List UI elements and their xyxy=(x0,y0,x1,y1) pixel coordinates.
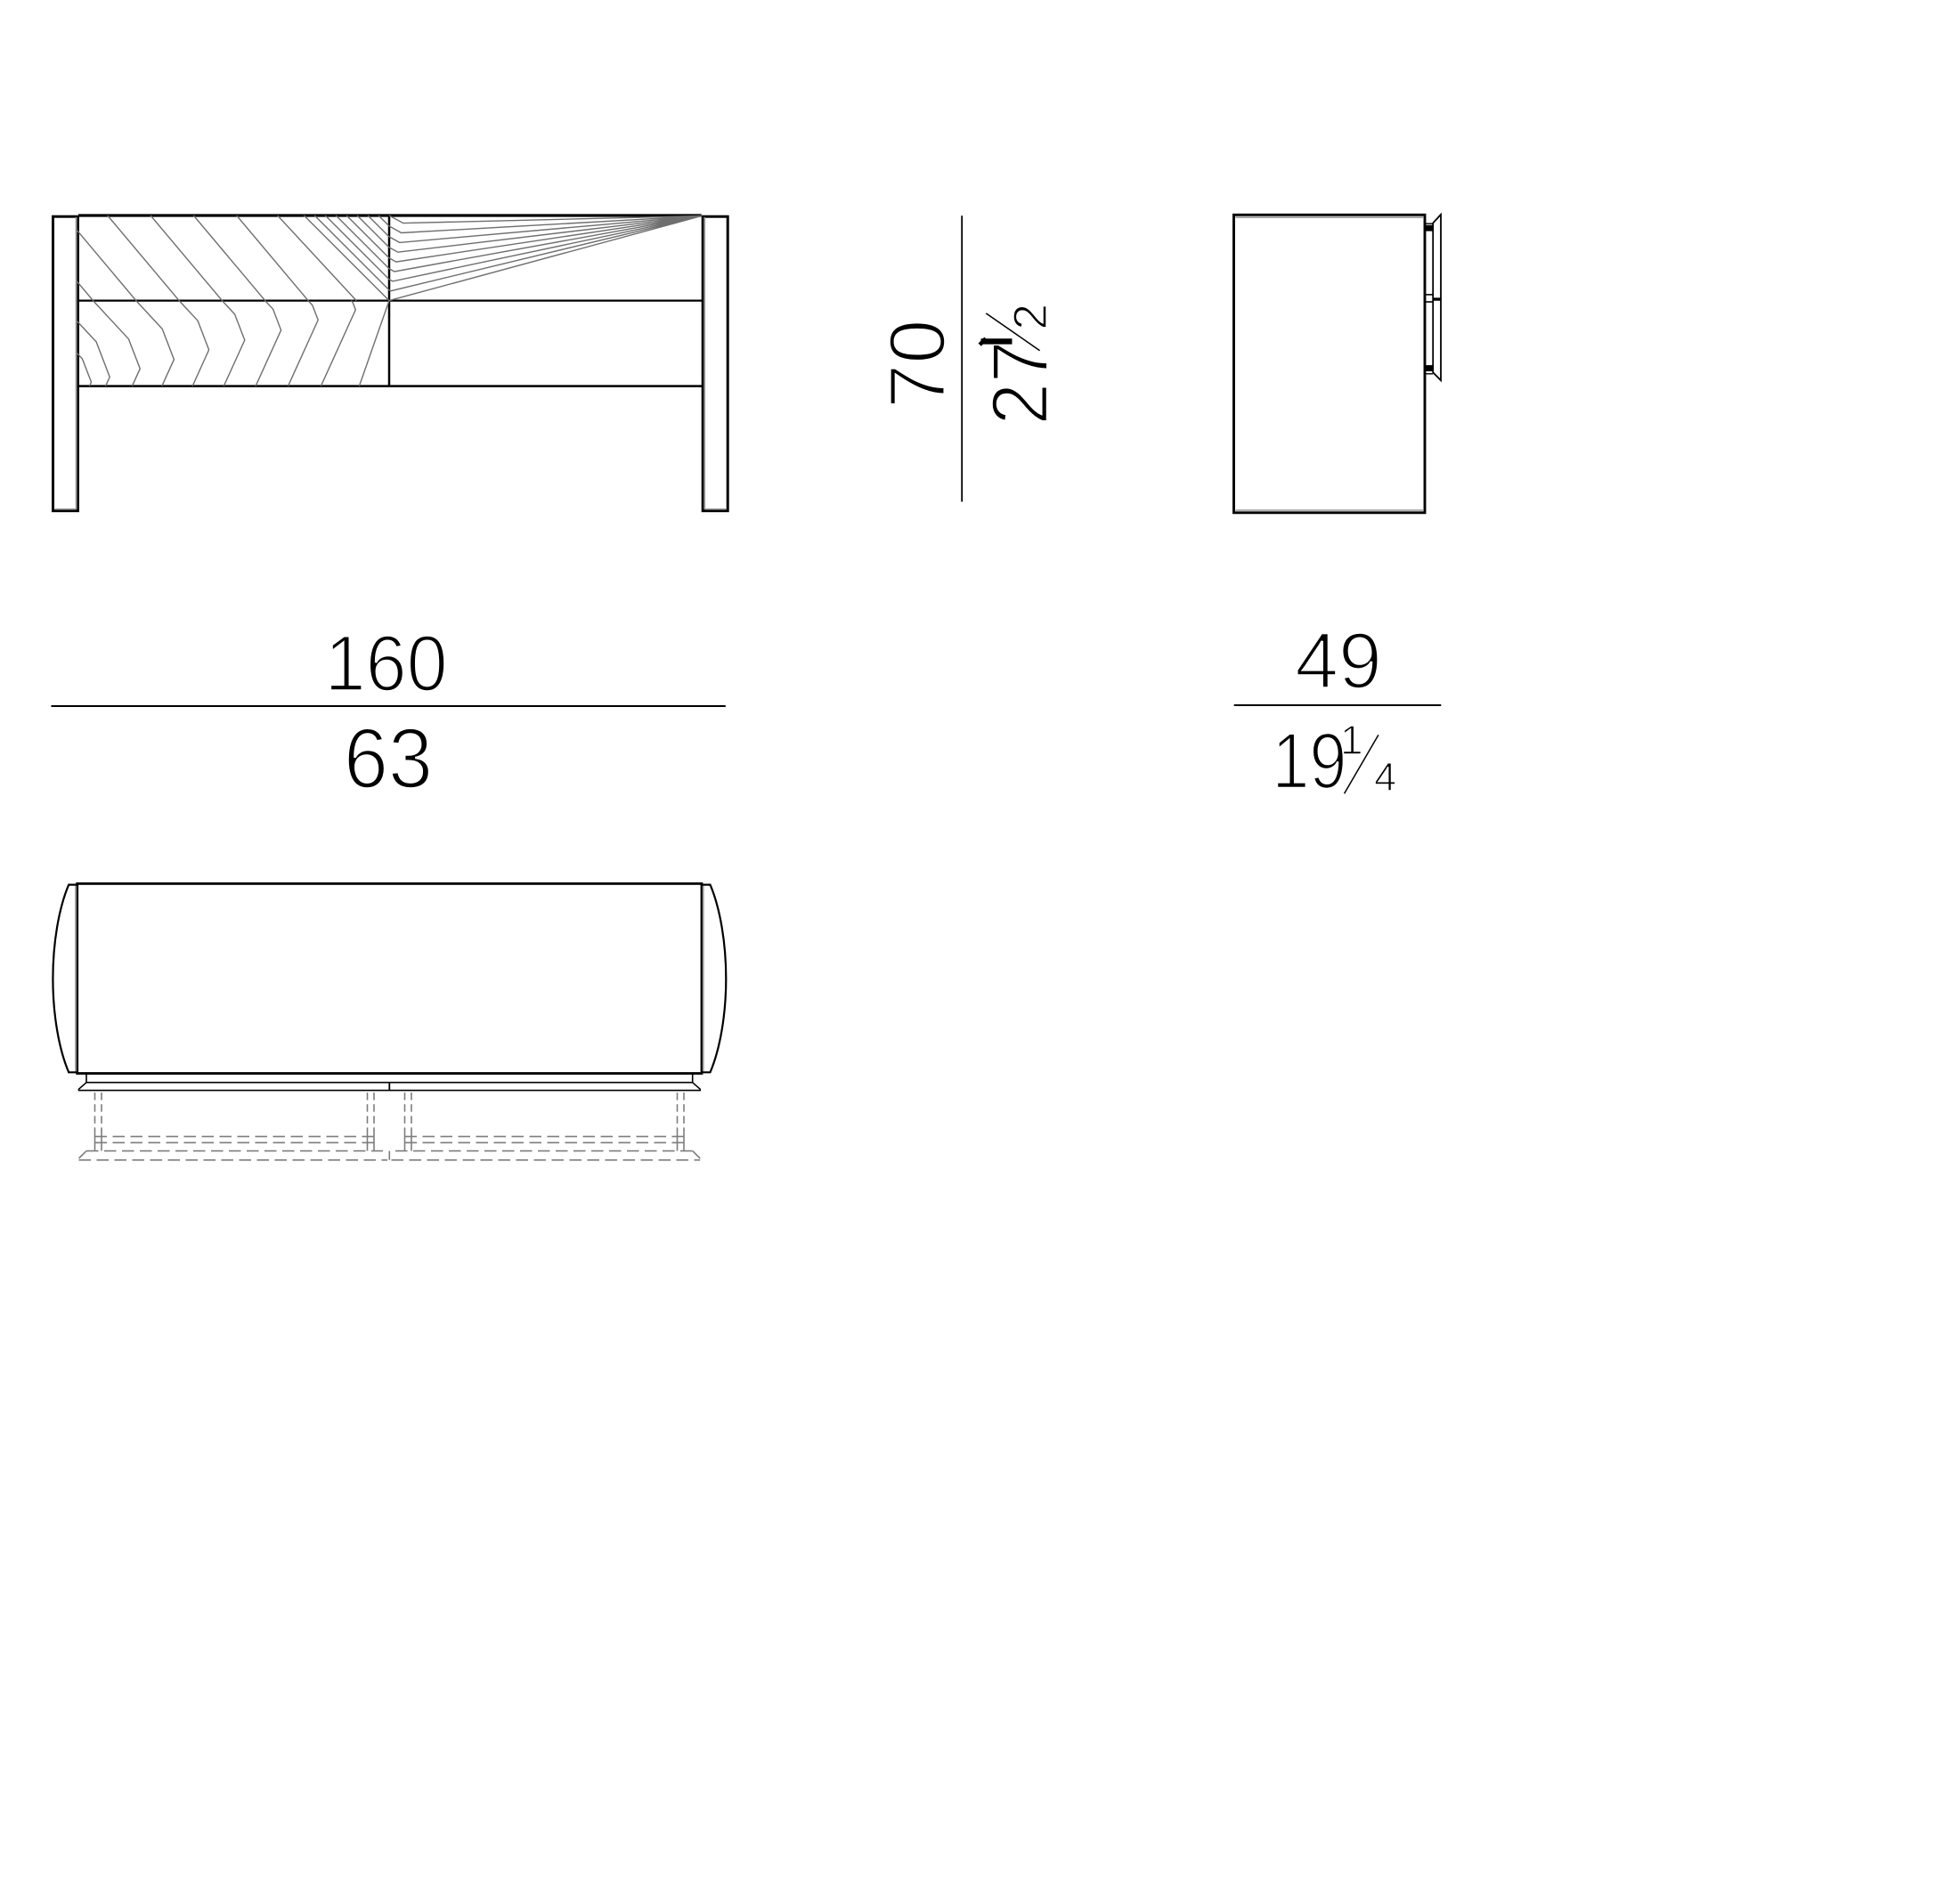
svg-text:70: 70 xyxy=(872,320,961,409)
svg-text:1: 1 xyxy=(1340,717,1363,763)
svg-text:4: 4 xyxy=(1374,754,1396,800)
svg-text:2: 2 xyxy=(1004,304,1057,329)
svg-text:160: 160 xyxy=(325,619,448,708)
svg-text:63: 63 xyxy=(344,711,433,806)
svg-text:19: 19 xyxy=(1272,716,1346,805)
svg-text:27: 27 xyxy=(975,341,1064,426)
svg-text:49: 49 xyxy=(1295,616,1382,705)
